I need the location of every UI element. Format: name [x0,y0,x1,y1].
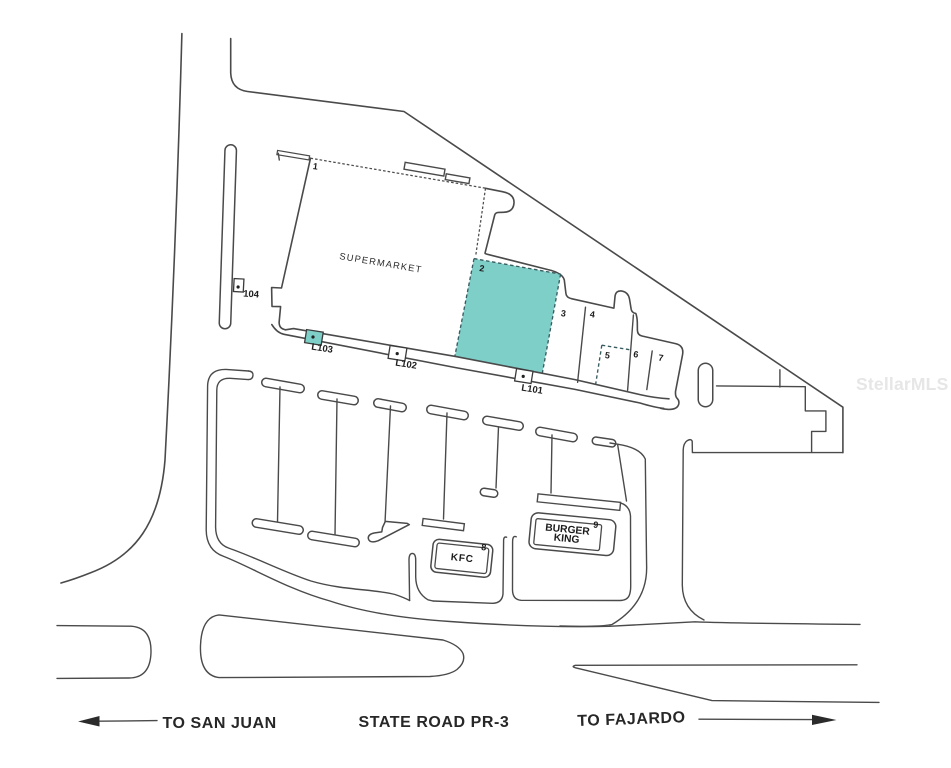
svg-text:TO SAN JUAN: TO SAN JUAN [163,715,277,732]
svg-text:STATE ROAD PR-3: STATE ROAD PR-3 [359,714,510,731]
svg-text:StellarMLS: StellarMLS [856,374,948,394]
svg-text:9: 9 [593,520,599,530]
svg-text:104: 104 [243,289,260,301]
svg-text:8: 8 [481,542,487,552]
